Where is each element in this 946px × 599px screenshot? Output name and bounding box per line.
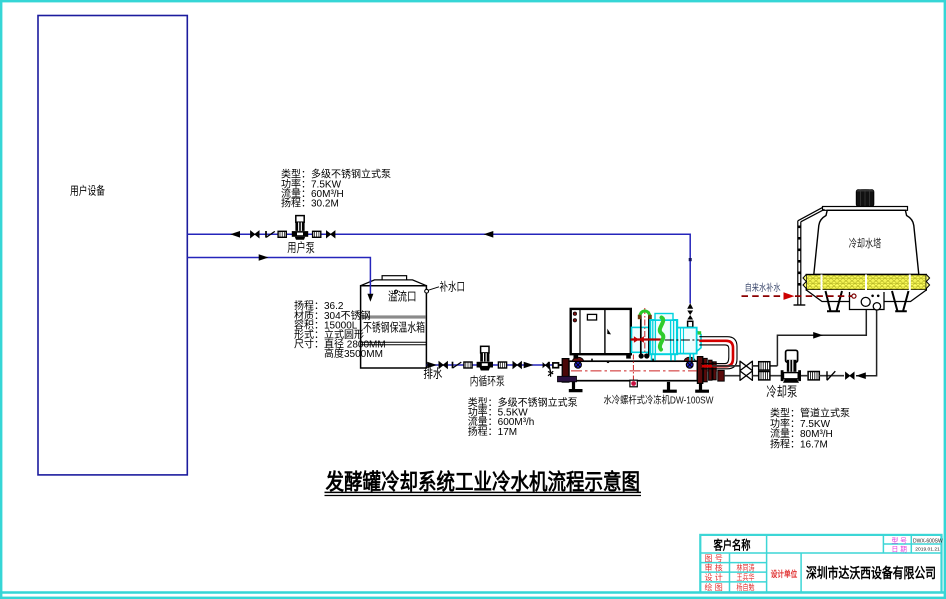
svg-text:客户名称: 客户名称 [713, 537, 751, 552]
svg-text:水冷螺杆式冷冻机DW-100SW: 水冷螺杆式冷冻机DW-100SW [604, 394, 714, 407]
svg-text:日 期: 日 期 [892, 546, 908, 554]
svg-text:扬程：30.2M: 扬程：30.2M [281, 197, 339, 210]
svg-text:设计单位: 设计单位 [771, 568, 798, 579]
svg-text:DWX-600SW: DWX-600SW [913, 539, 943, 545]
svg-text:图 号: 图 号 [705, 554, 723, 563]
svg-text:型 号: 型 号 [892, 536, 908, 545]
svg-text:扬程：17M: 扬程：17M [468, 425, 517, 438]
svg-text:功率：7.5KW: 功率：7.5KW [770, 417, 831, 430]
svg-text:林同涛: 林同涛 [737, 563, 755, 573]
svg-text:流量：80M³/H: 流量：80M³/H [770, 427, 833, 440]
svg-text:绘 图: 绘 图 [705, 582, 723, 592]
svg-text:不锈钢保温水箱: 不锈钢保温水箱 [363, 320, 425, 334]
svg-text:审 核: 审 核 [705, 563, 723, 573]
svg-text:设 计: 设 计 [705, 572, 723, 582]
svg-text:类型：管道立式泵: 类型：管道立式泵 [770, 407, 850, 420]
svg-text:用户设备: 用户设备 [70, 184, 105, 198]
svg-text:发酵罐冷却系统工业冷水机流程示意图: 发酵罐冷却系统工业冷水机流程示意图 [325, 469, 640, 494]
svg-text:冷却水塔: 冷却水塔 [849, 237, 882, 250]
svg-text:内循环泵: 内循环泵 [470, 374, 505, 388]
svg-text:2019.01.21: 2019.01.21 [915, 547, 940, 553]
svg-text:王兵华: 王兵华 [737, 572, 755, 582]
svg-text:用户泵: 用户泵 [287, 240, 315, 255]
svg-text:排水: 排水 [423, 367, 442, 381]
svg-text:扬程：16.7M: 扬程：16.7M [770, 438, 828, 451]
svg-text:溢流口: 溢流口 [388, 290, 417, 304]
svg-text:杨自勉: 杨自勉 [737, 582, 755, 592]
svg-text:冷却泵: 冷却泵 [766, 385, 797, 400]
svg-text:高度3500MM: 高度3500MM [324, 347, 383, 360]
svg-text:深圳市达沃西设备有限公司: 深圳市达沃西设备有限公司 [806, 564, 936, 582]
svg-text:自来水补水: 自来水补水 [745, 282, 781, 294]
svg-text:补水口: 补水口 [440, 281, 466, 294]
